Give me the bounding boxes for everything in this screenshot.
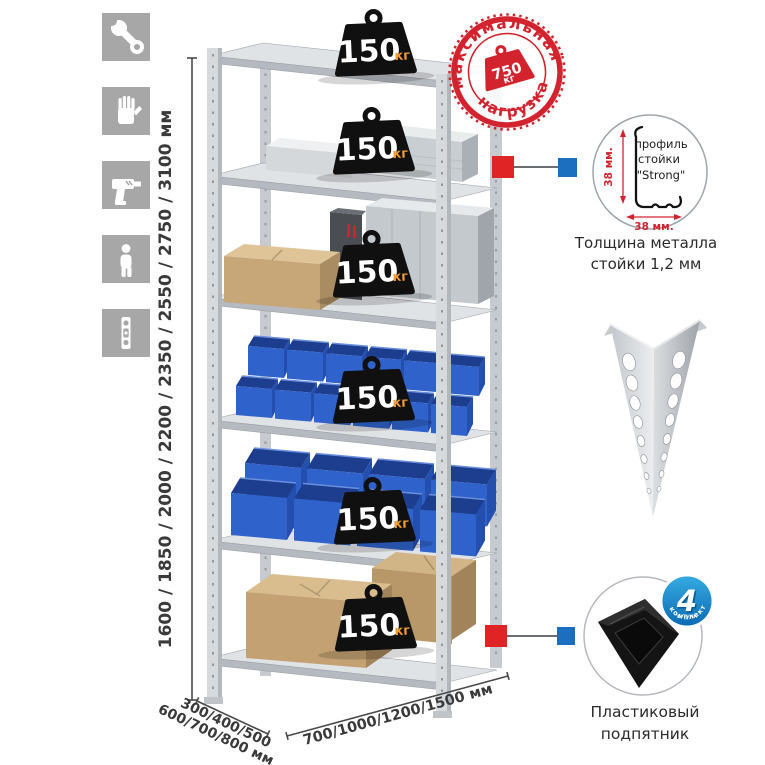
profile-caption-2: стойки 1,2 мм [591,255,702,273]
angle-post-piece [604,319,707,517]
scene: 1600 / 1850 / 2000 / 2200 / 2350 / 2550 … [0,0,765,765]
connector-red-square [492,156,514,178]
profile-dim-horizontal: 38 мм. [634,221,673,233]
profile-label-3: "Strong" [637,168,686,182]
svg-text:150: 150 [335,254,399,292]
foot-caption-2: подпятник [601,725,689,743]
svg-text:150: 150 [337,608,401,646]
rack-post-front-left [204,48,223,704]
svg-text:150: 150 [335,380,399,418]
load-unit: кг [394,48,410,64]
svg-text:кг: кг [394,623,410,639]
height-dimension: 1600 / 1850 / 2000 / 2200 / 2350 / 2550 … [156,58,197,700]
svg-text:150: 150 [336,501,400,539]
foot-caption-1: Пластиковый [591,703,700,721]
level-icon [102,309,150,357]
profile-detail: 38 мм. 38 мм. профиль стойки "Strong" То… [574,115,717,273]
connector-blue-square [558,158,577,177]
gloves-icon [102,87,150,135]
max-load-stamp: максимальная нагрузка 750 кг [433,0,581,144]
svg-text:кг: кг [392,395,408,411]
profile-label-1: профиль [634,137,688,151]
profile-dim-vertical: 38 мм. [603,147,615,186]
svg-text:кг: кг [393,516,409,532]
storage-bin [248,336,290,378]
drill-icon [102,161,150,209]
wrench-icon [102,13,150,61]
connector-red-square [485,625,507,647]
height-dimension-label: 1600 / 1850 / 2000 / 2200 / 2350 / 2550 … [156,110,176,649]
load-value: 150 [337,33,401,71]
person-icon [102,235,150,283]
svg-text:кг: кг [392,146,408,162]
svg-text:150: 150 [335,131,399,169]
profile-label-2: стойки [638,152,680,166]
connector-blue-square [557,627,575,645]
profile-caption-1: Толщина металла [574,234,717,252]
svg-text:кг: кг [392,269,408,285]
sidebar-icons [102,13,150,357]
product-infographic: 1600 / 1850 / 2000 / 2200 / 2350 / 2550 … [0,0,765,765]
width-label: 700/1000/1200/1500 мм [301,681,494,749]
